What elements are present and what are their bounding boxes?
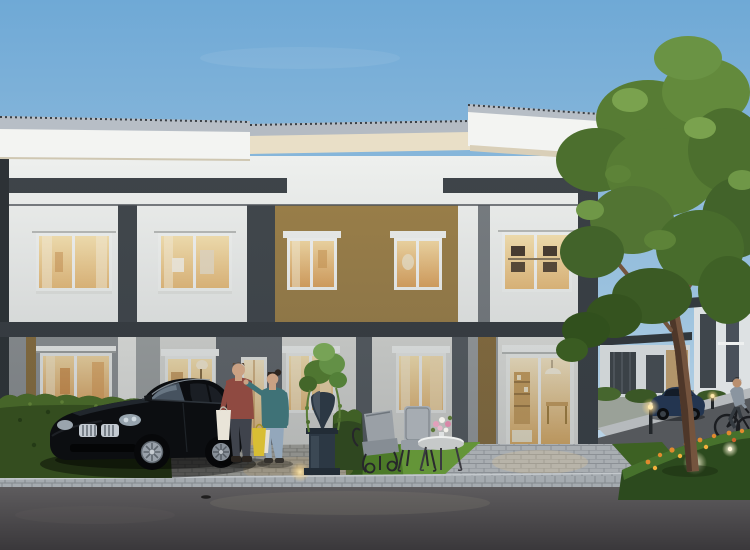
woman-hair-bun — [275, 369, 281, 375]
car-headlight-right — [119, 414, 141, 426]
road-reflection — [210, 491, 490, 515]
shopping-bag-white — [216, 410, 231, 440]
cloud — [200, 47, 400, 69]
car-front-wheel — [134, 434, 170, 470]
shopping-bag-yellow — [252, 428, 266, 456]
road-speck — [201, 495, 211, 499]
car-headlight-left — [57, 420, 73, 430]
fascia-left — [0, 129, 250, 160]
render-canvas — [0, 0, 750, 550]
car-lower-intake — [70, 444, 136, 452]
townhouse-render-image — [0, 0, 750, 550]
man-head — [232, 364, 245, 377]
